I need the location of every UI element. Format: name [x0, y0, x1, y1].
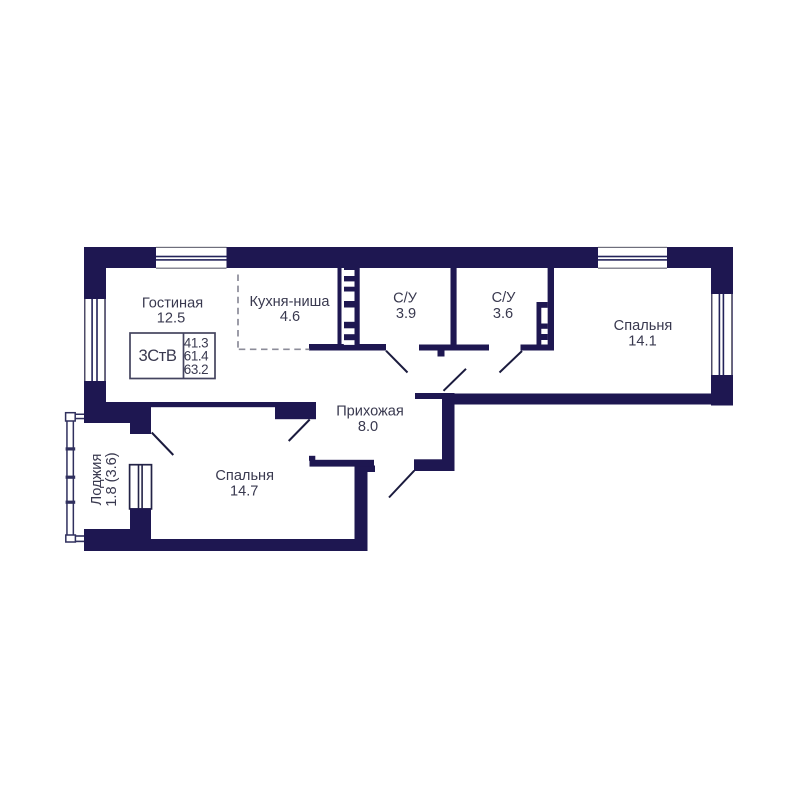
svg-text:Спальня: Спальня [614, 318, 673, 334]
svg-text:Спальня: Спальня [215, 468, 274, 484]
svg-text:63.2: 63.2 [184, 362, 208, 377]
svg-text:3СтВ: 3СтВ [139, 346, 177, 365]
svg-text:12.5: 12.5 [157, 311, 185, 327]
svg-text:1.8 (3.6): 1.8 (3.6) [104, 452, 120, 506]
svg-text:14.7: 14.7 [230, 484, 258, 500]
svg-text:Кухня-ниша: Кухня-ниша [250, 294, 331, 310]
svg-text:3.6: 3.6 [493, 306, 513, 322]
svg-text:Прихожая: Прихожая [336, 404, 404, 420]
svg-text:С/У: С/У [492, 290, 517, 306]
svg-text:Лоджия: Лоджия [89, 454, 105, 506]
svg-text:4.6: 4.6 [280, 309, 300, 325]
svg-text:8.0: 8.0 [358, 419, 378, 435]
svg-text:14.1: 14.1 [628, 333, 656, 349]
svg-text:Гостиная: Гостиная [142, 296, 203, 312]
svg-text:3.9: 3.9 [396, 306, 416, 322]
svg-text:С/У: С/У [393, 290, 418, 306]
